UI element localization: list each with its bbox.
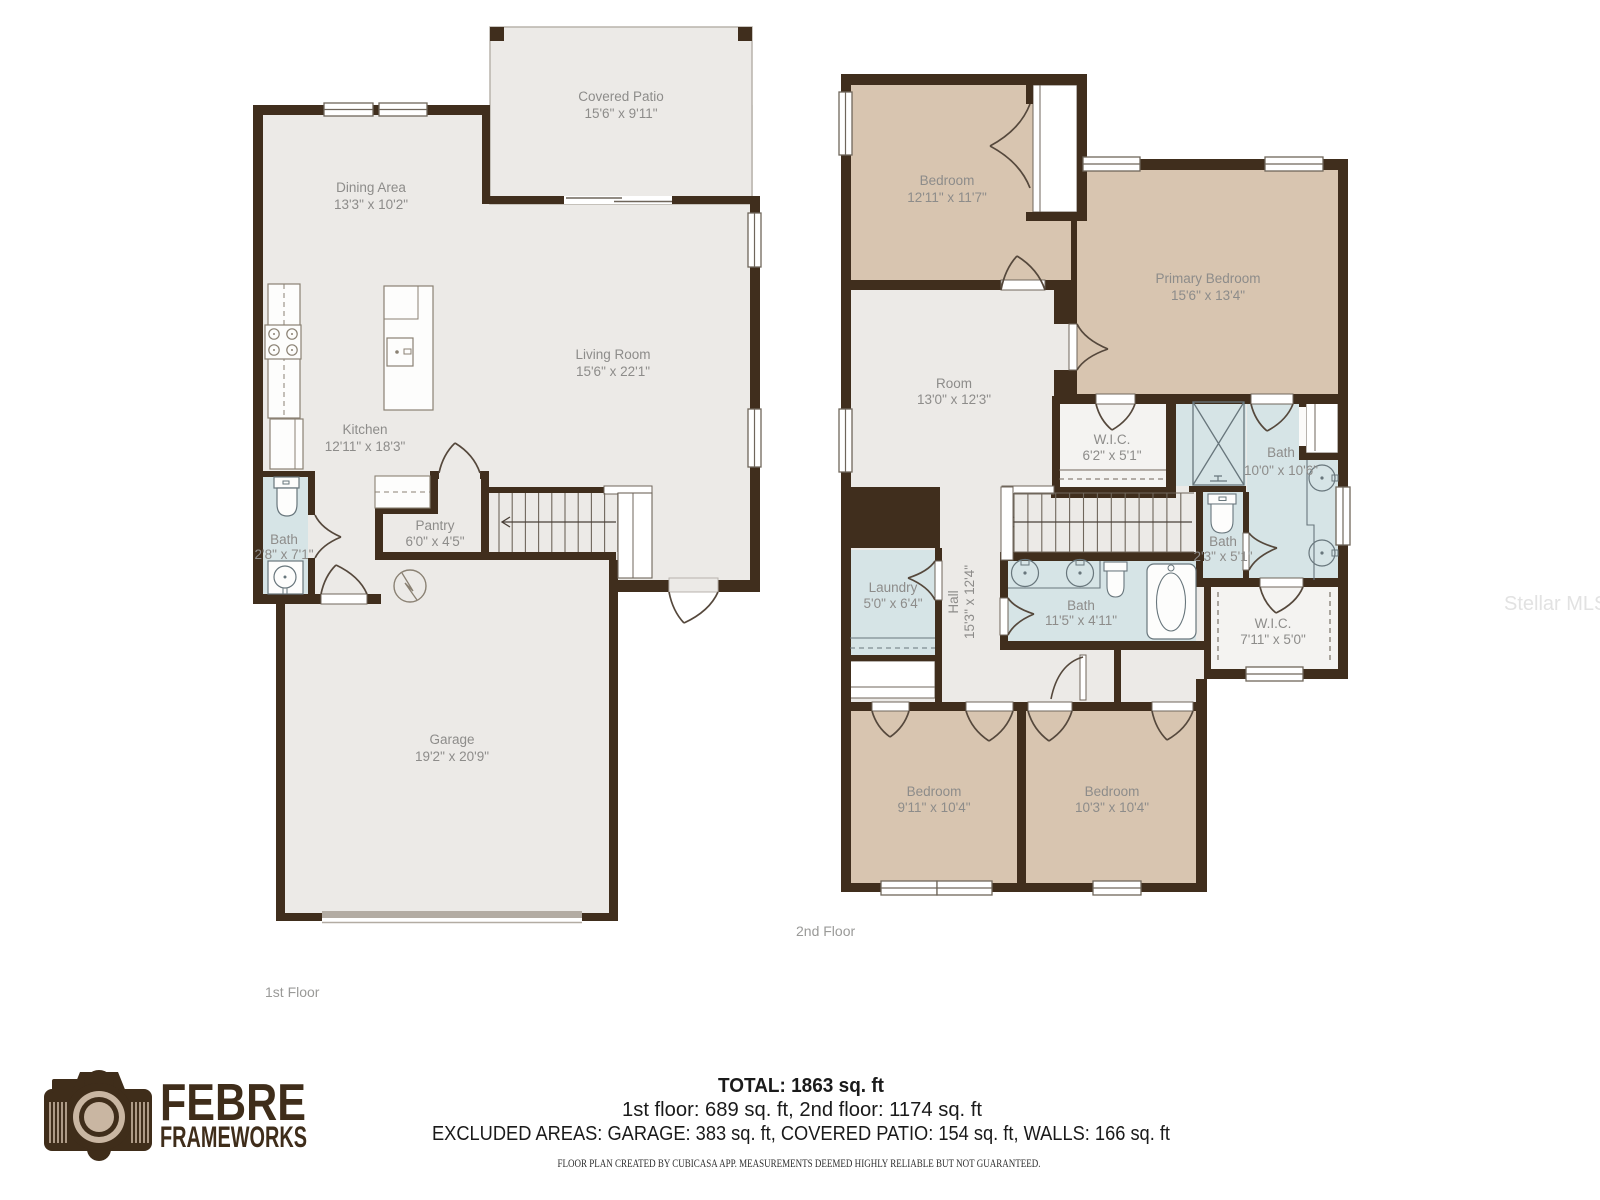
svg-text:W.I.C.: W.I.C.: [1094, 432, 1131, 447]
svg-text:EXCLUDED AREAS: GARAGE: 383 sq: EXCLUDED AREAS: GARAGE: 383 sq. ft, COVE…: [432, 1123, 1170, 1145]
svg-text:7'11" x 5'0": 7'11" x 5'0": [1240, 632, 1306, 647]
svg-text:Room: Room: [936, 376, 972, 391]
svg-text:1st Floor: 1st Floor: [265, 984, 320, 1000]
svg-text:12'11" x 18'3": 12'11" x 18'3": [325, 439, 406, 454]
svg-text:Kitchen: Kitchen: [342, 422, 387, 437]
svg-text:6'0" x 4'5": 6'0" x 4'5": [405, 534, 464, 549]
svg-text:2nd Floor: 2nd Floor: [796, 923, 855, 939]
svg-text:Living Room: Living Room: [575, 347, 650, 362]
svg-text:Dining Area: Dining Area: [336, 180, 406, 195]
svg-text:1st floor: 689 sq. ft, 2nd flo: 1st floor: 689 sq. ft, 2nd floor: 1174 s…: [622, 1099, 982, 1121]
svg-text:Pantry: Pantry: [415, 518, 454, 533]
svg-text:15'6" x 9'11": 15'6" x 9'11": [584, 106, 657, 121]
svg-text:10'0" x 10'6": 10'0" x 10'6": [1244, 463, 1318, 478]
svg-text:Laundry: Laundry: [869, 580, 918, 595]
svg-text:Bath: Bath: [1209, 534, 1237, 549]
svg-text:12'11" x 11'7": 12'11" x 11'7": [907, 190, 987, 205]
svg-text:Bedroom: Bedroom: [920, 173, 975, 188]
svg-text:Bedroom: Bedroom: [907, 784, 962, 799]
svg-text:Hall: Hall: [946, 590, 961, 613]
svg-text:15'3" x 12'4": 15'3" x 12'4": [962, 565, 977, 639]
svg-text:15'6" x 22'1": 15'6" x 22'1": [576, 364, 650, 379]
svg-text:W.I.C.: W.I.C.: [1255, 616, 1292, 631]
svg-text:19'2" x 20'9": 19'2" x 20'9": [415, 749, 489, 764]
svg-text:9'11" x 10'4": 9'11" x 10'4": [897, 800, 970, 815]
svg-text:6'2" x 5'1": 6'2" x 5'1": [1082, 448, 1141, 463]
svg-text:Covered Patio: Covered Patio: [578, 89, 664, 104]
svg-text:2'3" x 5'1": 2'3" x 5'1": [1193, 549, 1252, 564]
svg-text:Garage: Garage: [429, 732, 474, 747]
svg-text:11'5" x 4'11": 11'5" x 4'11": [1045, 613, 1117, 628]
svg-text:Bath: Bath: [1267, 445, 1295, 460]
svg-text:Stellar MLS: Stellar MLS: [1504, 593, 1600, 615]
svg-text:Primary Bedroom: Primary Bedroom: [1155, 271, 1260, 286]
svg-text:10'3" x 10'4": 10'3" x 10'4": [1075, 800, 1149, 815]
svg-text:Bedroom: Bedroom: [1085, 784, 1140, 799]
svg-text:13'0" x 12'3": 13'0" x 12'3": [917, 392, 991, 407]
svg-text:2'8" x 7'1": 2'8" x 7'1": [254, 547, 313, 562]
svg-text:FLOOR PLAN CREATED BY CUBICASA: FLOOR PLAN CREATED BY CUBICASA APP. MEAS…: [558, 1156, 1041, 1170]
svg-text:5'0" x 6'4": 5'0" x 6'4": [863, 596, 922, 611]
svg-text:Bath: Bath: [270, 532, 298, 547]
svg-text:Bath: Bath: [1067, 598, 1095, 613]
svg-text:FRAMEWORKS: FRAMEWORKS: [160, 1121, 307, 1154]
svg-text:13'3" x 10'2": 13'3" x 10'2": [334, 197, 408, 212]
svg-text:15'6" x 13'4": 15'6" x 13'4": [1171, 288, 1245, 303]
svg-text:TOTAL: 1863 sq. ft: TOTAL: 1863 sq. ft: [718, 1075, 884, 1097]
